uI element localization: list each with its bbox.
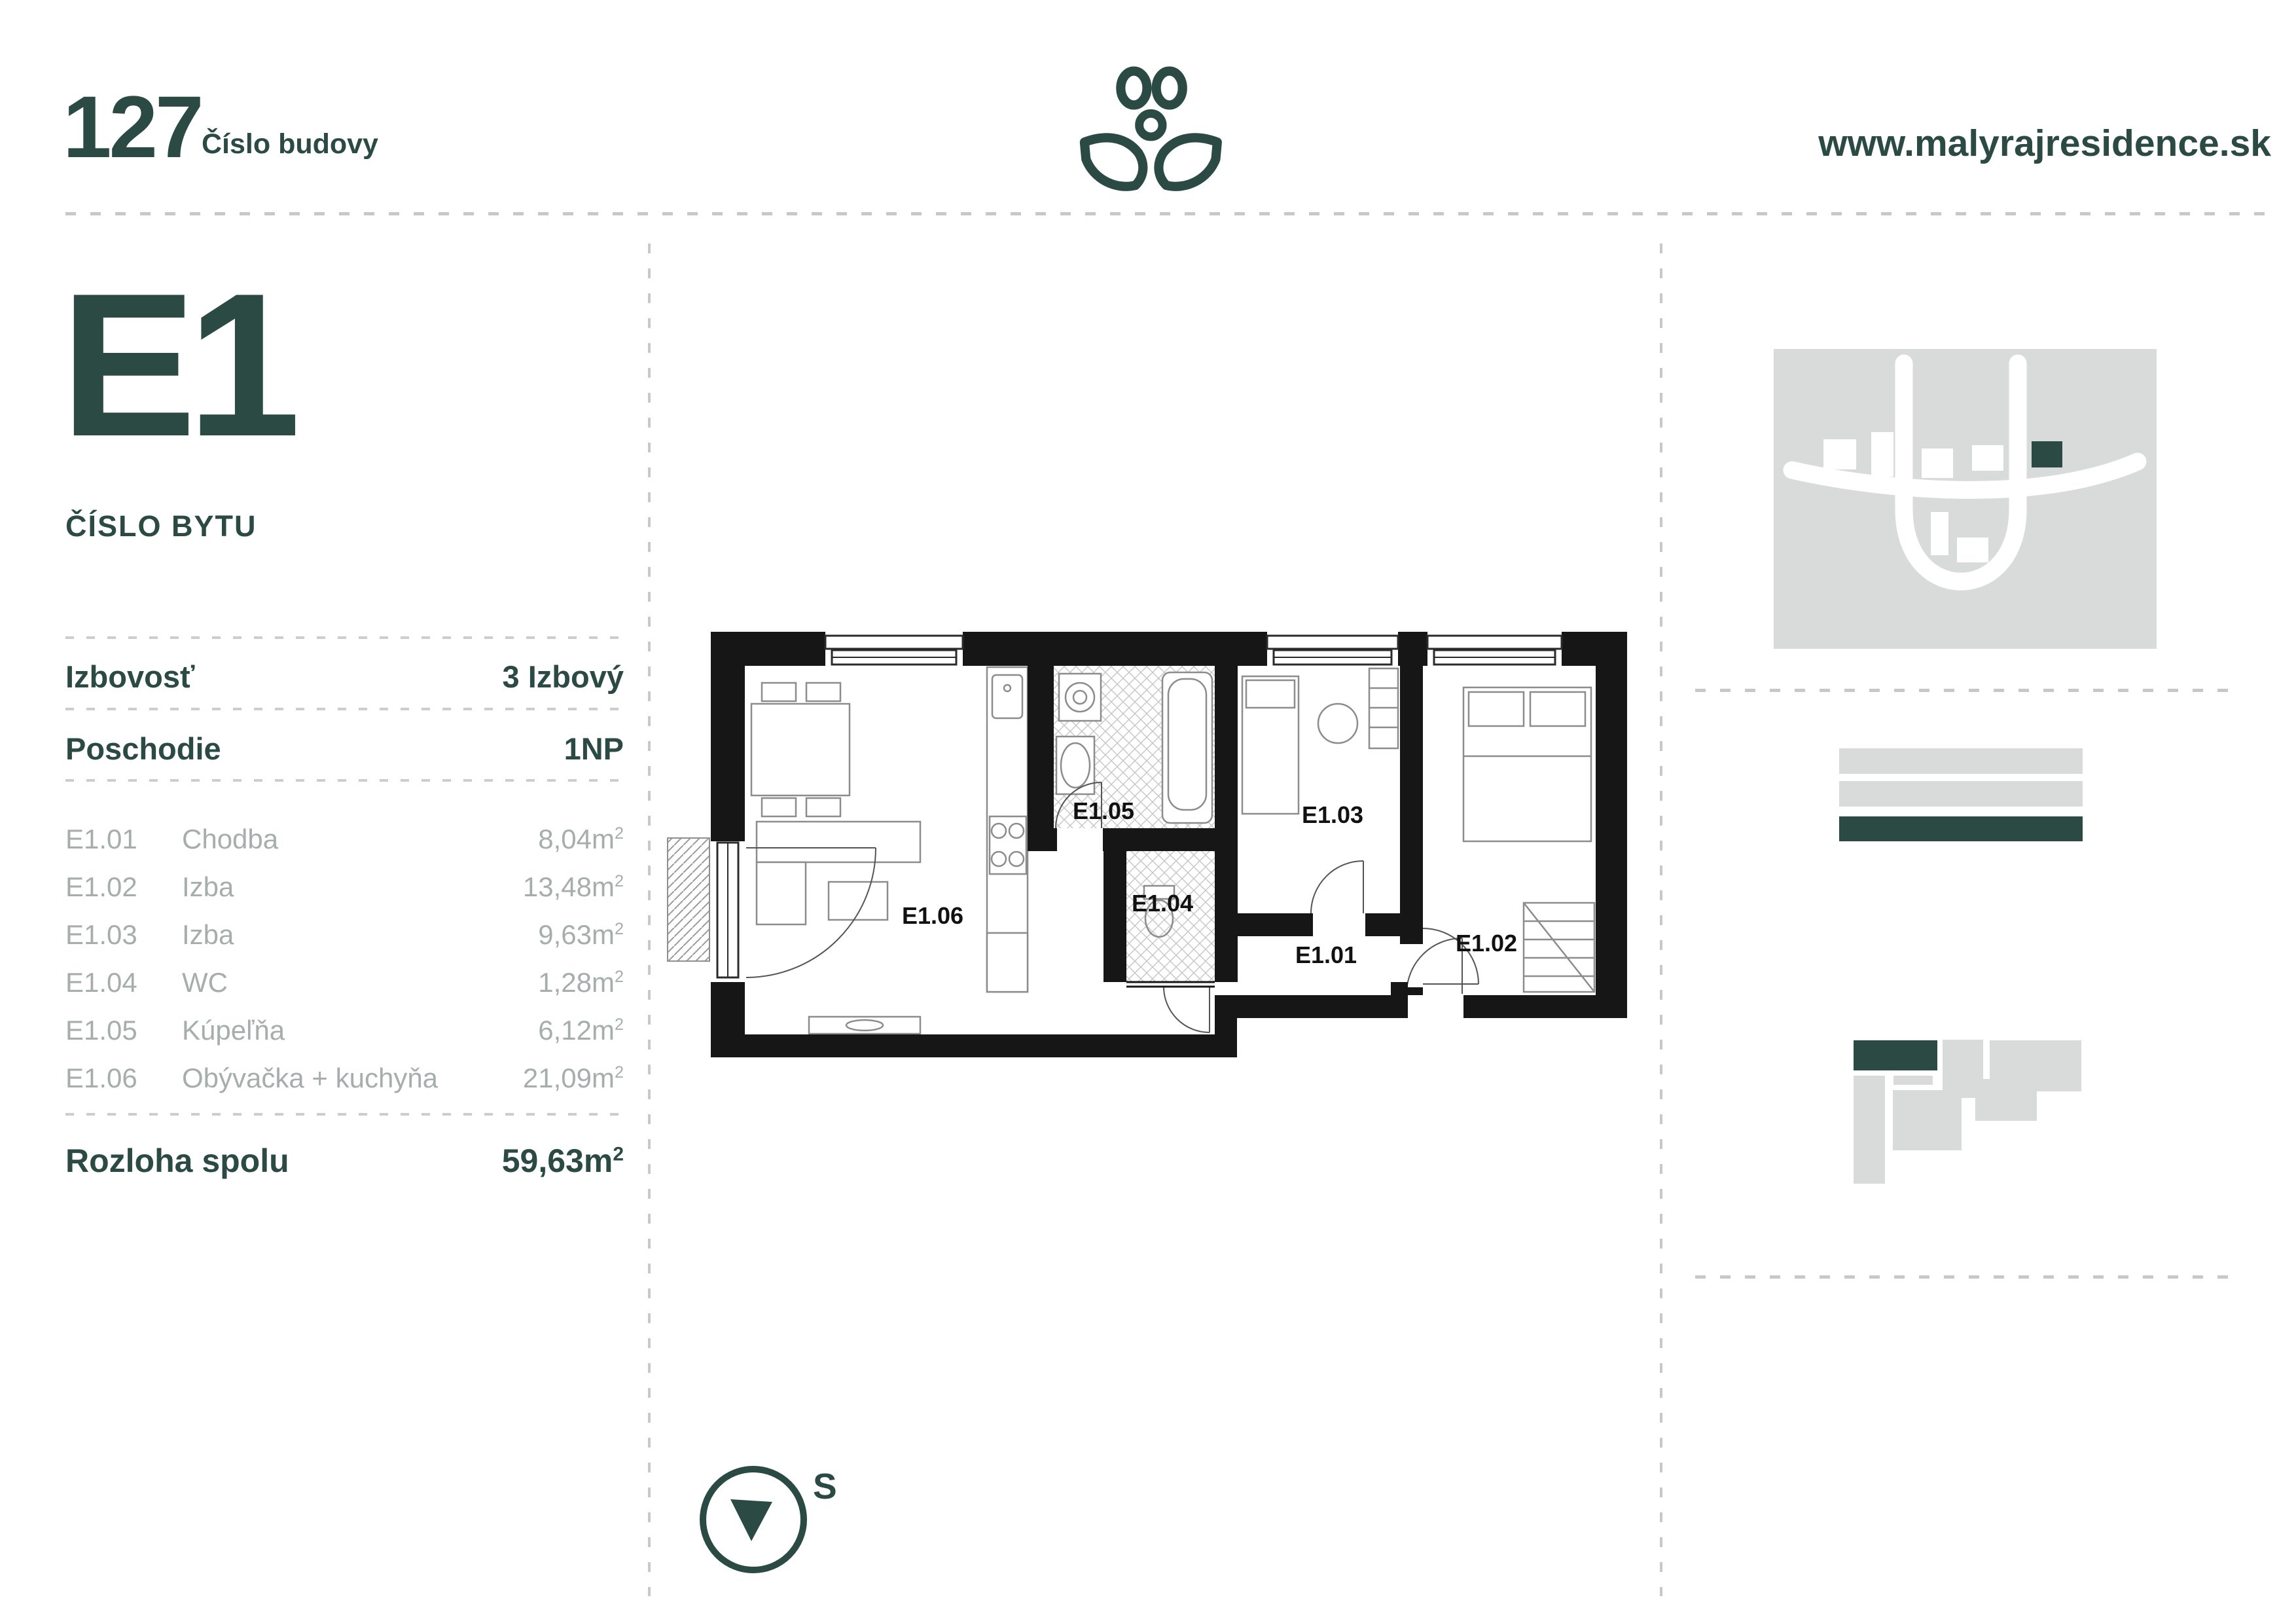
terrace-hatch bbox=[668, 838, 709, 961]
room3-furniture bbox=[1242, 668, 1398, 814]
floor-bar-upper bbox=[1839, 748, 2083, 774]
room-code: E1.04 bbox=[65, 967, 182, 998]
website-link[interactable]: www.malyrajresidence.sk bbox=[1818, 122, 2271, 165]
wc-threshold bbox=[1126, 982, 1215, 987]
room-area: 6,12m2 bbox=[538, 1015, 624, 1046]
table-divider bbox=[65, 636, 624, 639]
apartment-number: E1 bbox=[60, 267, 292, 464]
room-code: E1.03 bbox=[65, 919, 182, 951]
current-floor-bar bbox=[1839, 816, 2083, 841]
current-building-marker bbox=[2032, 441, 2062, 467]
livingroom-furniture bbox=[751, 667, 1028, 1034]
total-area-row: Rozloha spolu 59,63m2 bbox=[65, 1142, 624, 1180]
detail-value: 3 Izbový bbox=[503, 659, 624, 695]
room-label-e101: E1.01 bbox=[1295, 941, 1357, 968]
room-area: 13,48m2 bbox=[523, 871, 624, 903]
current-unit-marker bbox=[1854, 1040, 1937, 1070]
room-area: 9,63m2 bbox=[538, 919, 624, 951]
room-area: 1,28m2 bbox=[538, 967, 624, 998]
total-area-value: 59,63m2 bbox=[502, 1142, 624, 1180]
room-code: E1.01 bbox=[65, 824, 182, 855]
room-area: 21,09m2 bbox=[523, 1063, 624, 1094]
room-list-row: E1.01 Chodba 8,04m2 bbox=[65, 824, 624, 855]
room-name: Izba bbox=[182, 871, 523, 903]
apartment-number-label: ČÍSLO BYTU bbox=[65, 509, 257, 543]
room-name: WC bbox=[182, 967, 538, 998]
room-label-e106: E1.06 bbox=[902, 902, 963, 929]
room-name: Chodba bbox=[182, 824, 538, 855]
right-column-divider-top bbox=[1695, 689, 2242, 692]
room-list-row: E1.06 Obývačka + kuchyňa 21,09m2 bbox=[65, 1063, 624, 1094]
building-number-label: Číslo budovy bbox=[202, 128, 378, 160]
room-area: 8,04m2 bbox=[538, 824, 624, 855]
table-divider bbox=[65, 1113, 624, 1116]
room-label-e103: E1.03 bbox=[1302, 801, 1363, 828]
header-divider bbox=[65, 212, 2272, 215]
detail-row-rooms-count: Izbovosť 3 Izbový bbox=[65, 659, 624, 695]
detail-row-floor: Poschodie 1NP bbox=[65, 731, 624, 767]
site-plan-map bbox=[1774, 349, 2157, 649]
floor-bar-middle bbox=[1839, 781, 2083, 807]
plant-logo-icon bbox=[1072, 60, 1227, 215]
detail-label: Izbovosť bbox=[65, 659, 194, 695]
building-number: 127 bbox=[63, 77, 202, 177]
compass-direction-label: S bbox=[813, 1465, 837, 1507]
room-name: Kúpeľňa bbox=[182, 1015, 538, 1046]
compass-south-icon bbox=[696, 1463, 810, 1577]
room-name: Izba bbox=[182, 919, 538, 951]
building-units-diagram bbox=[1850, 1037, 2083, 1203]
room-code: E1.06 bbox=[65, 1063, 182, 1094]
room-label-e104: E1.04 bbox=[1132, 890, 1193, 917]
room-label-e102: E1.02 bbox=[1456, 930, 1517, 957]
detail-label: Poschodie bbox=[65, 731, 221, 767]
table-divider bbox=[65, 708, 624, 710]
room-code: E1.05 bbox=[65, 1015, 182, 1046]
floor-plan-drawing: E1.06 E1.05 E1.03 E1.04 E1.02 E1.01 bbox=[665, 625, 1627, 1090]
room-list-row: E1.02 Izba 13,48m2 bbox=[65, 871, 624, 903]
room-name: Obývačka + kuchyňa bbox=[182, 1063, 523, 1094]
detail-value: 1NP bbox=[564, 731, 624, 767]
room-code: E1.02 bbox=[65, 871, 182, 903]
room-list-row: E1.05 Kúpeľňa 6,12m2 bbox=[65, 1015, 624, 1046]
table-divider bbox=[65, 779, 624, 782]
right-column-divider bbox=[1660, 244, 1662, 1596]
right-column-divider-bottom bbox=[1695, 1275, 2242, 1279]
room-list-row: E1.04 WC 1,28m2 bbox=[65, 967, 624, 998]
room-label-e105: E1.05 bbox=[1073, 797, 1134, 824]
left-column-divider bbox=[648, 244, 651, 1596]
floorplan-datasheet-page: 127 Číslo budovy www.malyrajresidence.sk… bbox=[0, 0, 2296, 1623]
total-area-label: Rozloha spolu bbox=[65, 1142, 289, 1180]
room-list-row: E1.03 Izba 9,63m2 bbox=[65, 919, 624, 951]
